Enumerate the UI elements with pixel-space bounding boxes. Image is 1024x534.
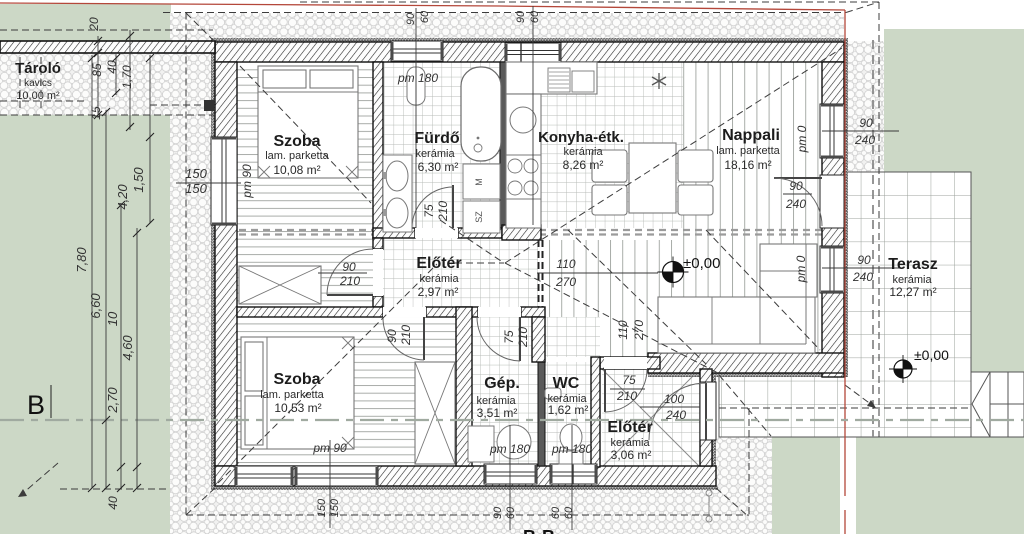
svg-text:20: 20 xyxy=(87,17,101,32)
svg-text:lam. parketta: lam. parketta xyxy=(260,389,324,401)
svg-text:150: 150 xyxy=(185,181,207,196)
svg-text:210: 210 xyxy=(436,201,450,222)
svg-text:B-B: B-B xyxy=(523,527,555,534)
svg-text:150: 150 xyxy=(185,166,207,181)
svg-text:4,20: 4,20 xyxy=(115,184,130,210)
svg-text:60: 60 xyxy=(563,506,575,519)
svg-text:150: 150 xyxy=(316,498,328,517)
svg-text:pm 0: pm 0 xyxy=(795,125,809,153)
svg-text:10,08 m²: 10,08 m² xyxy=(273,163,320,177)
svg-text:85: 85 xyxy=(90,63,104,77)
svg-text:Előtér: Előtér xyxy=(607,419,652,436)
svg-text:240: 240 xyxy=(665,408,686,422)
svg-text:lam. parketta: lam. parketta xyxy=(265,150,329,162)
svg-text:1,70: 1,70 xyxy=(120,65,134,89)
svg-text:90: 90 xyxy=(859,116,873,130)
svg-text:90: 90 xyxy=(789,179,803,193)
svg-text:Nappali: Nappali xyxy=(722,127,780,144)
svg-text:40: 40 xyxy=(106,496,120,510)
svg-text:kavics: kavics xyxy=(24,78,52,89)
svg-text:210: 210 xyxy=(516,327,530,348)
svg-text:4,60: 4,60 xyxy=(120,335,135,361)
svg-text:210: 210 xyxy=(339,274,360,288)
svg-text:240: 240 xyxy=(852,270,873,284)
svg-text:3,06 m²: 3,06 m² xyxy=(611,448,652,462)
svg-text:270: 270 xyxy=(632,320,646,341)
svg-text:±0,00: ±0,00 xyxy=(914,347,949,363)
svg-text:60: 60 xyxy=(505,506,517,519)
svg-text:18,16 m²: 18,16 m² xyxy=(724,158,771,172)
svg-text:60: 60 xyxy=(529,10,541,23)
svg-text:75: 75 xyxy=(502,330,516,344)
svg-text:150: 150 xyxy=(329,498,341,517)
svg-text:60: 60 xyxy=(419,10,431,23)
svg-text:pm 90: pm 90 xyxy=(312,441,347,455)
svg-text:lam. parketta: lam. parketta xyxy=(716,145,780,157)
svg-text:3,51 m²: 3,51 m² xyxy=(477,406,518,420)
svg-text:kerámia: kerámia xyxy=(419,273,459,285)
svg-text:WC: WC xyxy=(553,375,580,392)
svg-text:Terasz: Terasz xyxy=(888,256,938,273)
svg-text:kerámia: kerámia xyxy=(415,148,455,160)
svg-text:15: 15 xyxy=(89,106,103,120)
svg-text:1,50: 1,50 xyxy=(131,167,146,193)
svg-text:90: 90 xyxy=(492,506,504,519)
svg-text:6,30 m²: 6,30 m² xyxy=(418,160,459,174)
svg-text:90: 90 xyxy=(515,10,527,23)
svg-text:90: 90 xyxy=(385,329,399,343)
svg-text:60: 60 xyxy=(550,506,562,519)
svg-text:SZ: SZ xyxy=(474,211,484,223)
svg-text:100: 100 xyxy=(664,392,684,406)
svg-text:7,80: 7,80 xyxy=(74,247,89,273)
svg-text:12,27 m²: 12,27 m² xyxy=(889,285,936,299)
svg-text:210: 210 xyxy=(399,325,413,346)
svg-text:75: 75 xyxy=(422,204,436,218)
svg-text:±0,00: ±0,00 xyxy=(683,255,720,272)
svg-text:B: B xyxy=(27,390,45,420)
svg-text:Tároló: Tároló xyxy=(15,60,61,77)
svg-text:10,53 m²: 10,53 m² xyxy=(274,401,321,415)
svg-text:2,70: 2,70 xyxy=(105,387,120,414)
svg-text:75: 75 xyxy=(622,373,636,387)
svg-text:Előtér: Előtér xyxy=(416,255,461,272)
svg-text:pm 0: pm 0 xyxy=(794,255,808,283)
svg-text:6,60: 6,60 xyxy=(88,293,103,319)
svg-text:pm 180: pm 180 xyxy=(397,71,438,85)
svg-text:2,97 m²: 2,97 m² xyxy=(418,285,459,299)
svg-text:90: 90 xyxy=(857,253,871,267)
svg-text:10: 10 xyxy=(105,311,120,326)
svg-text:8,26 m²: 8,26 m² xyxy=(563,158,604,172)
svg-text:10,00 m²: 10,00 m² xyxy=(16,90,60,102)
svg-text:pm 90: pm 90 xyxy=(240,164,254,199)
svg-text:90: 90 xyxy=(342,260,356,274)
svg-text:210: 210 xyxy=(616,389,637,403)
svg-text:Szoba: Szoba xyxy=(273,133,320,150)
svg-text:Gép.: Gép. xyxy=(484,375,520,392)
svg-text:90: 90 xyxy=(405,12,417,25)
svg-text:110: 110 xyxy=(616,320,630,339)
svg-text:Fürdő: Fürdő xyxy=(414,130,460,147)
svg-text:110: 110 xyxy=(556,257,575,271)
svg-text:Szoba: Szoba xyxy=(273,371,320,388)
svg-text:M: M xyxy=(474,178,484,186)
svg-text:pm 180: pm 180 xyxy=(551,442,592,456)
svg-text:pm 180: pm 180 xyxy=(489,442,530,456)
svg-text:kerámia: kerámia xyxy=(563,146,603,158)
svg-text:240: 240 xyxy=(854,133,875,147)
svg-text:270: 270 xyxy=(555,275,576,289)
svg-text:Konyha-étk.: Konyha-étk. xyxy=(538,129,624,146)
svg-text:40: 40 xyxy=(105,60,119,74)
svg-text:1,62 m²: 1,62 m² xyxy=(548,403,589,417)
svg-text:240: 240 xyxy=(785,197,806,211)
